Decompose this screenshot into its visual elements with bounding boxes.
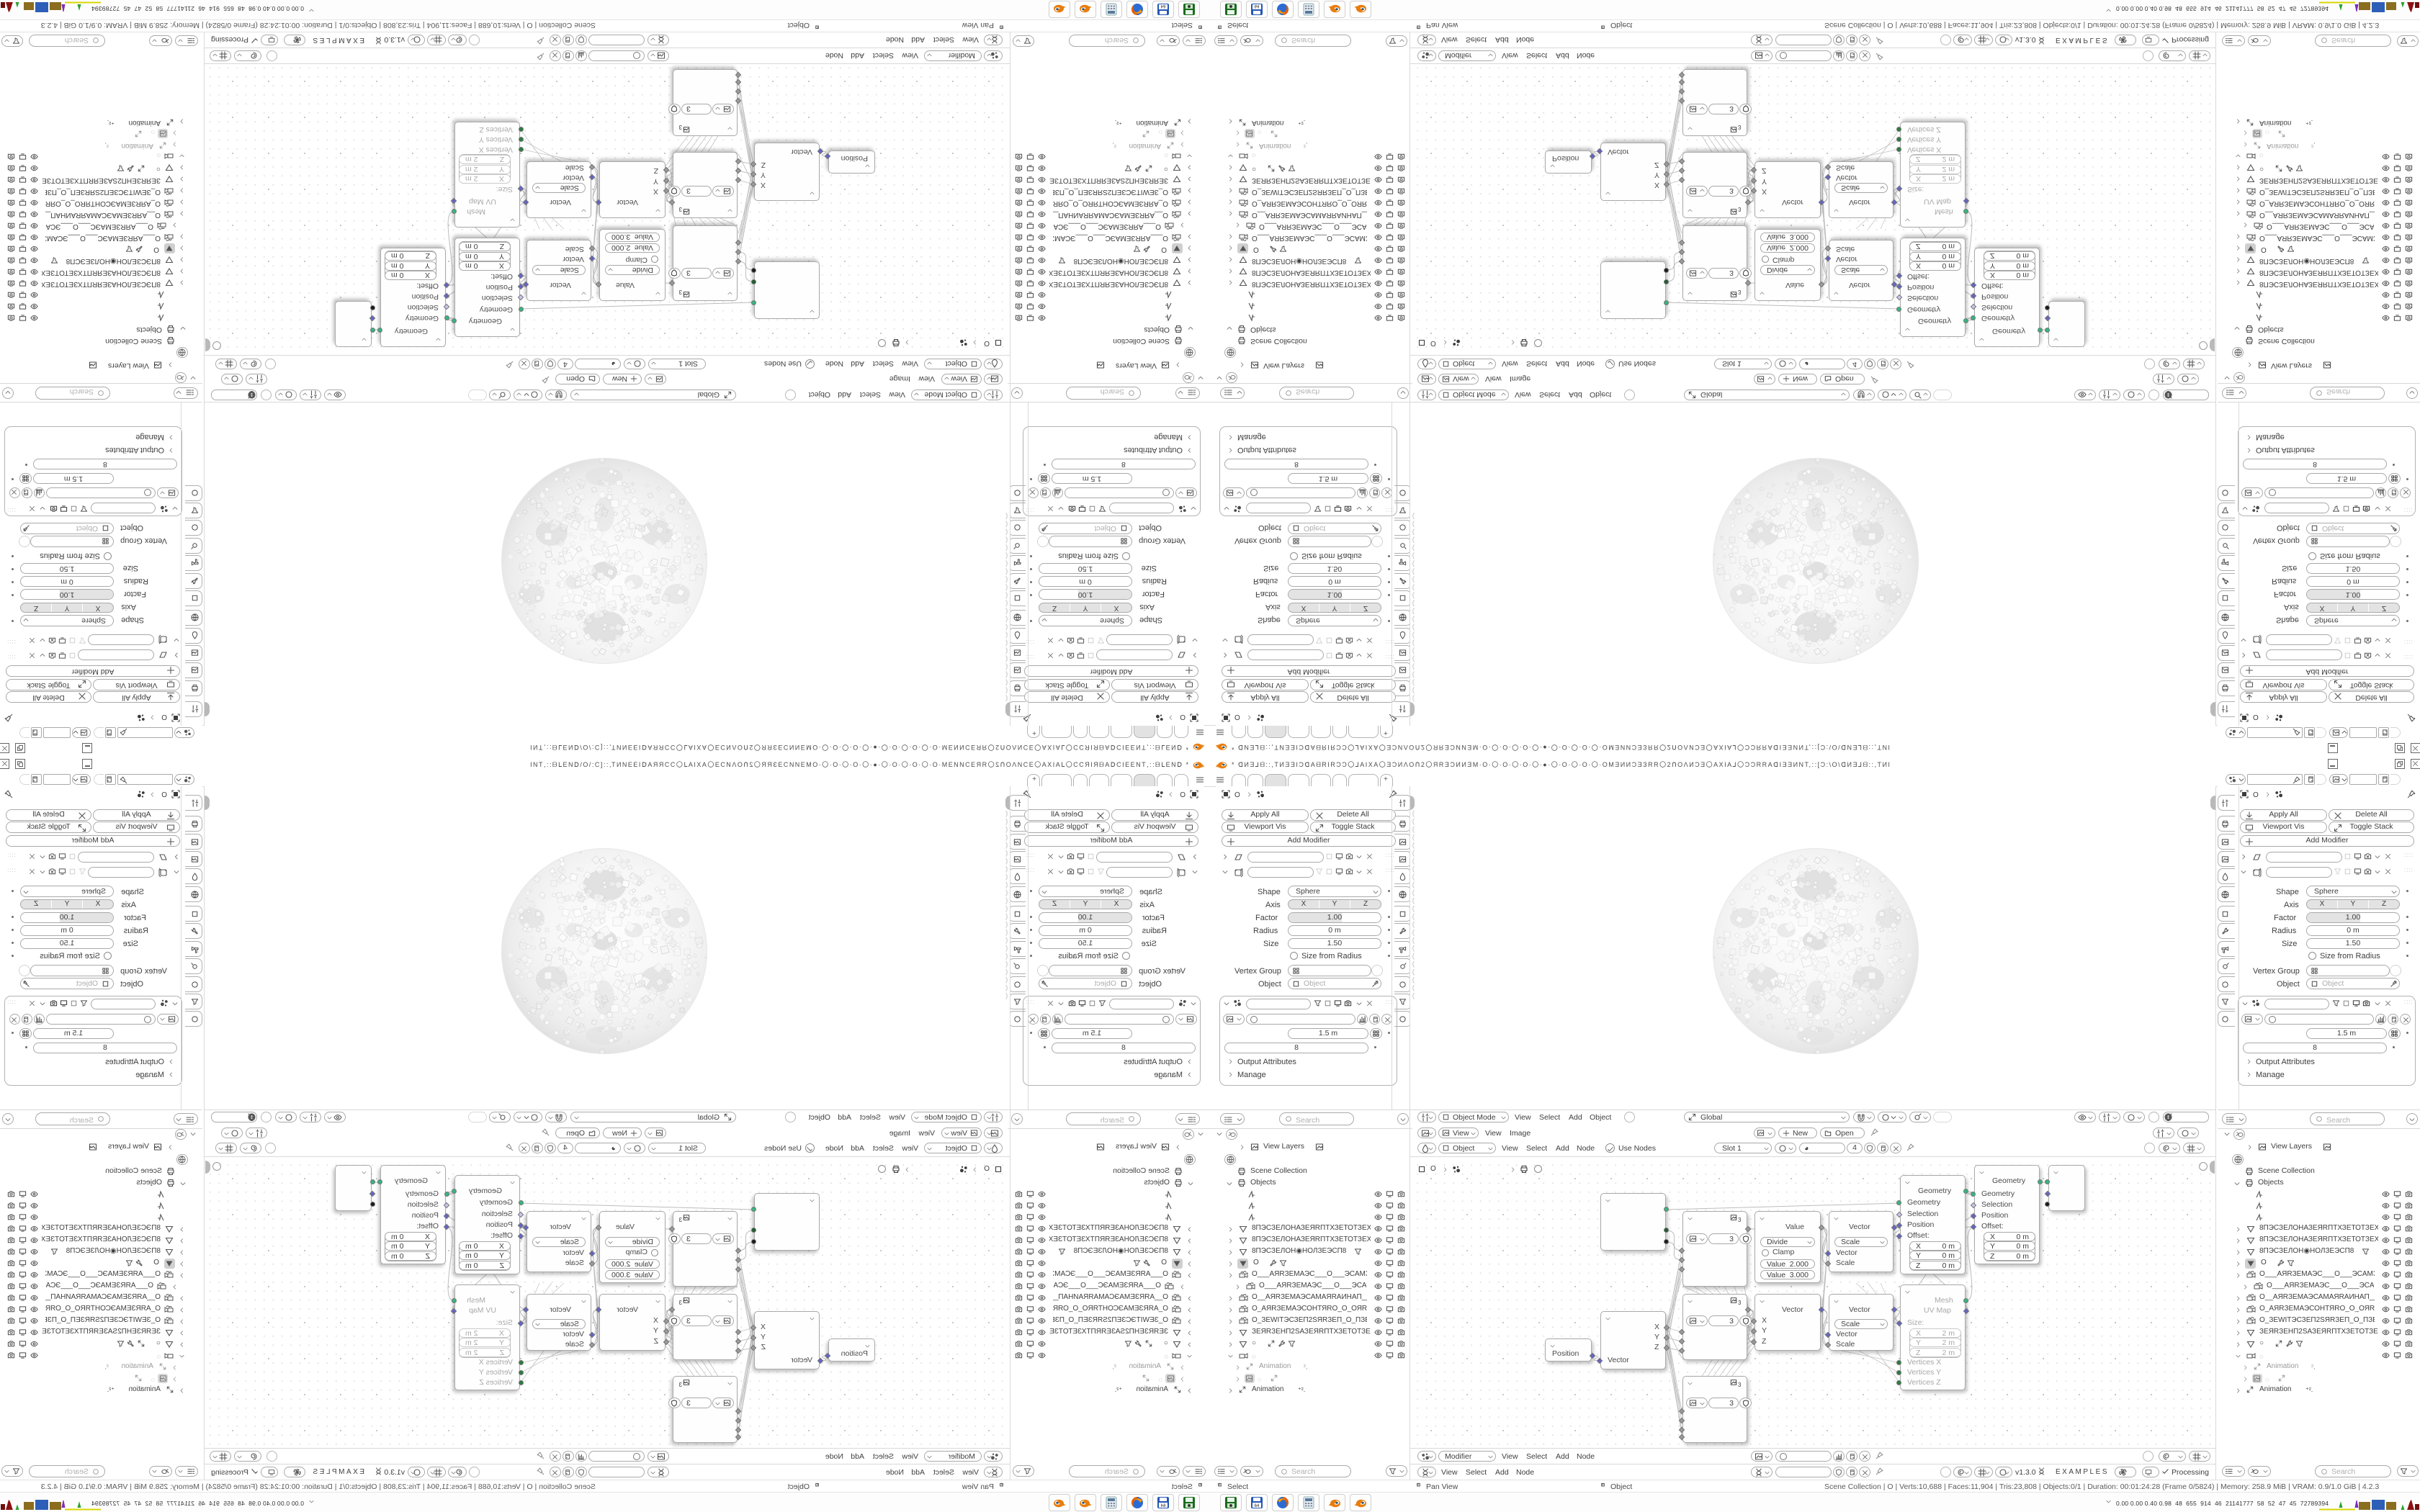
svg-text:64: 64 <box>1160 4 1165 8</box>
svg-text:64: 64 <box>1255 4 1260 8</box>
svg-text:64: 64 <box>1160 1504 1165 1508</box>
svg-text:64: 64 <box>1255 1504 1260 1508</box>
